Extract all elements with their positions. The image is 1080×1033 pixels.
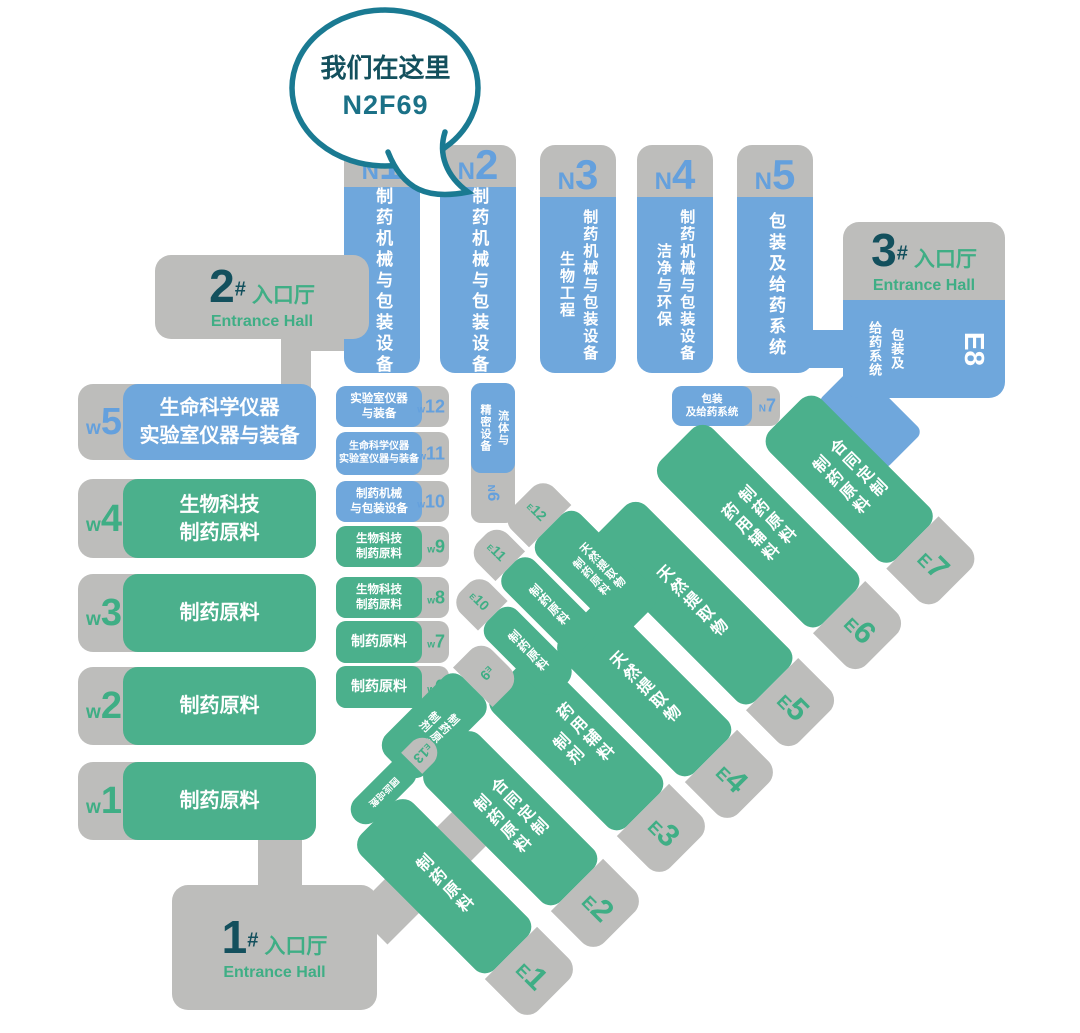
hall-e8-text2: 给药系统 xyxy=(863,321,885,377)
hall-n6-text2: 精密设备 xyxy=(475,404,493,452)
entrance-hall-2: 2#入口厅 Entrance Hall xyxy=(155,255,369,339)
hall-n4-label: N4 xyxy=(637,145,713,197)
hall-w4-label: w4 xyxy=(78,500,130,538)
hall-n7-number: 7 xyxy=(766,396,776,416)
hall-w7-category: 制药原料 xyxy=(336,621,422,663)
hall-n5: N5 包装及给药系统 xyxy=(737,145,813,373)
hall-w4-category: 生物科技制药原料 xyxy=(123,479,316,558)
hall-w12-label: w12 xyxy=(417,396,445,417)
entrance2-title: 2#入口厅 xyxy=(209,263,315,309)
hall-w1-number: 1 xyxy=(101,780,122,822)
hall-w4-prefix: w xyxy=(86,515,101,536)
hall-n3-text2: 生物工程 xyxy=(555,209,578,362)
hall-w12-text1: 实验室仪器 xyxy=(350,392,408,406)
hall-w11-prefix: w xyxy=(418,451,426,462)
hall-w9: 生物科技制药原料 w9 xyxy=(336,526,449,567)
entrance-hall-3: 3#入口厅 Entrance Hall xyxy=(843,222,1005,300)
entrance-hall-1: 1#入口厅 Entrance Hall xyxy=(172,885,377,1010)
hall-n5-label: N5 xyxy=(737,145,813,197)
entrance3-number: 3 xyxy=(871,224,897,276)
hall-w6-text: 制药原料 xyxy=(351,678,407,696)
hall-w7-number: 7 xyxy=(435,632,445,652)
hall-w11-text1: 生命科学仪器 xyxy=(349,441,409,454)
hall-n3-text1: 制药机械与包装设备 xyxy=(578,209,601,362)
hall-w9-text1: 生物科技 xyxy=(356,532,402,546)
hall-w5: 生命科学仪器实验室仪器与装备 w5 xyxy=(78,384,316,460)
hall-w3-number: 3 xyxy=(101,592,122,634)
entrance1-cn: 入口厅 xyxy=(264,935,327,958)
hall-w1-category: 制药原料 xyxy=(123,762,316,840)
hall-w12-category: 实验室仪器与装备 xyxy=(336,386,422,427)
hall-w7: 制药原料 w7 xyxy=(336,621,449,663)
entrance2-en: Entrance Hall xyxy=(211,313,313,331)
hall-w11-number: 11 xyxy=(426,443,445,463)
hall-w5-text1: 生命科学仪器 xyxy=(160,394,280,422)
entrance1-hash: # xyxy=(247,929,258,951)
hall-n3-category: 制药机械与包装设备生物工程 xyxy=(540,197,616,373)
hall-n3: N3 制药机械与包装设备生物工程 xyxy=(540,145,616,373)
hall-w10-text2: 与包装设备 xyxy=(350,502,408,516)
hall-w9-text2: 制药原料 xyxy=(356,547,402,561)
hall-w7-text: 制药原料 xyxy=(351,633,407,651)
hall-w4-text1: 生物科技 xyxy=(180,491,260,519)
entrance3-hash: # xyxy=(897,243,908,265)
hall-n7-category: 包装及给药系统 xyxy=(672,386,752,426)
hall-w1-prefix: w xyxy=(86,797,101,818)
hall-w12-text2: 与装备 xyxy=(362,407,397,421)
hall-n4-prefix: N xyxy=(655,169,672,195)
hall-w10-number: 10 xyxy=(425,491,445,511)
hall-w3-prefix: w xyxy=(86,609,101,630)
hall-w10: 制药机械与包装设备 w10 xyxy=(336,481,449,522)
hall-e8-label: E8 xyxy=(958,332,990,366)
hall-w6-category: 制药原料 xyxy=(336,666,422,708)
hall-e11-text: 制药原料 xyxy=(525,581,574,630)
hall-w8-category: 生物科技制药原料 xyxy=(336,577,422,618)
entrance2-cn: 入口厅 xyxy=(252,284,315,307)
hall-w4: 生物科技制药原料 w4 xyxy=(78,479,316,558)
entrance1-title: 1#入口厅 xyxy=(222,914,328,960)
hall-w5-label: w5 xyxy=(78,403,130,441)
hall-w2: 制药原料 w2 xyxy=(78,667,316,745)
hall-w2-label: w2 xyxy=(78,687,130,725)
hall-w3: 制药原料 w3 xyxy=(78,574,316,652)
hall-e8-category: 包装及给药系统 xyxy=(863,321,907,377)
hall-n6: 流体与精密设备 N6 xyxy=(471,383,515,523)
exhibition-floor-plan: N1 制药机械与包装设备 N2 制药机械与包装设备 N3 制药机械与包装设备生物… xyxy=(0,0,1080,1033)
hall-n7-text2: 及给药系统 xyxy=(686,406,739,419)
hall-w7-label: w7 xyxy=(427,632,445,653)
bubble-line2: N2F69 xyxy=(288,90,483,121)
hall-w9-number: 9 xyxy=(435,536,445,556)
hall-w3-text: 制药原料 xyxy=(180,599,260,627)
hall-n3-prefix: N xyxy=(558,169,575,195)
hall-n7-text1: 包装 xyxy=(702,393,723,406)
entrance3-cn: 入口厅 xyxy=(914,248,977,271)
hall-n4: N4 制药机械与包装设备洁净与环保 xyxy=(637,145,713,373)
hall-w10-text1: 制药机械 xyxy=(356,487,402,501)
hall-w8-text2: 制药原料 xyxy=(356,598,402,612)
hall-w1: 制药原料 w1 xyxy=(78,762,316,840)
hall-w5-text2: 实验室仪器与装备 xyxy=(140,422,300,450)
hall-e8-number: 8 xyxy=(959,351,990,367)
entrance2-hash: # xyxy=(235,279,246,301)
hall-w11: 生命科学仪器实验室仪器与装备 w11 xyxy=(336,432,449,475)
hall-w11-label: w11 xyxy=(418,443,445,464)
hall-w8-number: 8 xyxy=(435,587,445,607)
hall-w8-text1: 生物科技 xyxy=(356,583,402,597)
hall-w2-number: 2 xyxy=(101,685,122,727)
hall-w8: 生物科技制药原料 w8 xyxy=(336,577,449,618)
hall-e8: 包装及给药系统 E8 xyxy=(843,300,1005,398)
hall-n6-label: N6 xyxy=(483,485,503,502)
hall-w2-prefix: w xyxy=(86,702,101,723)
hall-w11-text2: 实验室仪器与装备 xyxy=(339,454,419,467)
hall-w7-prefix: w xyxy=(427,640,435,651)
hall-n3-label: N3 xyxy=(540,145,616,197)
hall-w9-label: w9 xyxy=(427,536,445,557)
hall-e8-text1: 包装及 xyxy=(885,321,907,377)
entrance2-number: 2 xyxy=(209,260,235,312)
hall-w5-prefix: w xyxy=(86,418,101,439)
hall-w5-number: 5 xyxy=(101,401,122,443)
hall-n6-text1: 流体与 xyxy=(493,404,511,452)
bubble-line1: 我们在这里 xyxy=(288,48,483,85)
speech-bubble-outline xyxy=(292,10,478,166)
hall-w1-label: w1 xyxy=(78,782,130,820)
hall-n4-number: 4 xyxy=(672,155,695,195)
hall-n3-number: 3 xyxy=(575,155,598,195)
hall-w8-label: w8 xyxy=(427,587,445,608)
hall-w4-number: 4 xyxy=(101,498,122,540)
hall-w4-text2: 制药原料 xyxy=(180,519,260,547)
hall-w9-prefix: w xyxy=(427,544,435,555)
entrance1-en: Entrance Hall xyxy=(223,964,325,982)
hall-w10-category: 制药机械与包装设备 xyxy=(336,481,422,522)
entrance1-number: 1 xyxy=(222,911,248,963)
hall-n5-category: 包装及给药系统 xyxy=(737,197,813,373)
hall-n7: 包装及给药系统 N7 xyxy=(672,386,780,426)
hall-e5-text: 天然提取物 xyxy=(649,561,733,645)
hall-e4-text: 天然提取物 xyxy=(602,647,686,731)
hall-n4-text1: 制药机械与包装设备 xyxy=(675,209,698,362)
hall-n5-number: 5 xyxy=(772,155,795,195)
entrance3-title: 3#入口厅 xyxy=(871,227,977,273)
hall-n5-text: 包装及给药系统 xyxy=(762,212,788,359)
connector-w1-entrance1 xyxy=(258,836,302,890)
hall-w10-label: w10 xyxy=(417,491,445,512)
hall-n6-number: 6 xyxy=(484,492,503,501)
hall-w1-text: 制药原料 xyxy=(180,787,260,815)
hall-n7-label: N7 xyxy=(759,396,776,417)
hall-e1-text: 制药原料 xyxy=(408,850,479,921)
hall-w9-category: 生物科技制药原料 xyxy=(336,526,422,567)
hall-w8-prefix: w xyxy=(427,595,435,606)
hall-w12-prefix: w xyxy=(417,404,425,415)
entrance3-en: Entrance Hall xyxy=(873,277,975,295)
hall-w2-text: 制药原料 xyxy=(180,692,260,720)
hall-w11-category: 生命科学仪器实验室仪器与装备 xyxy=(336,432,422,475)
entrance3-e8-block: 3#入口厅 Entrance Hall 包装及给药系统 E8 xyxy=(843,222,1005,398)
hall-e8-prefix: E xyxy=(959,332,990,351)
hall-w12-number: 12 xyxy=(425,396,445,416)
hall-w10-prefix: w xyxy=(417,499,425,510)
hall-w12: 实验室仪器与装备 w12 xyxy=(336,386,449,427)
hall-w2-category: 制药原料 xyxy=(123,667,316,745)
hall-w5-category: 生命科学仪器实验室仪器与装备 xyxy=(123,384,316,460)
hall-n6-category: 流体与精密设备 xyxy=(471,383,515,473)
hall-w3-label: w3 xyxy=(78,594,130,632)
hall-n4-category: 制药机械与包装设备洁净与环保 xyxy=(637,197,713,373)
hall-n4-text2: 洁净与环保 xyxy=(652,209,675,362)
hall-n5-prefix: N xyxy=(755,169,772,195)
hall-w3-category: 制药原料 xyxy=(123,574,316,652)
